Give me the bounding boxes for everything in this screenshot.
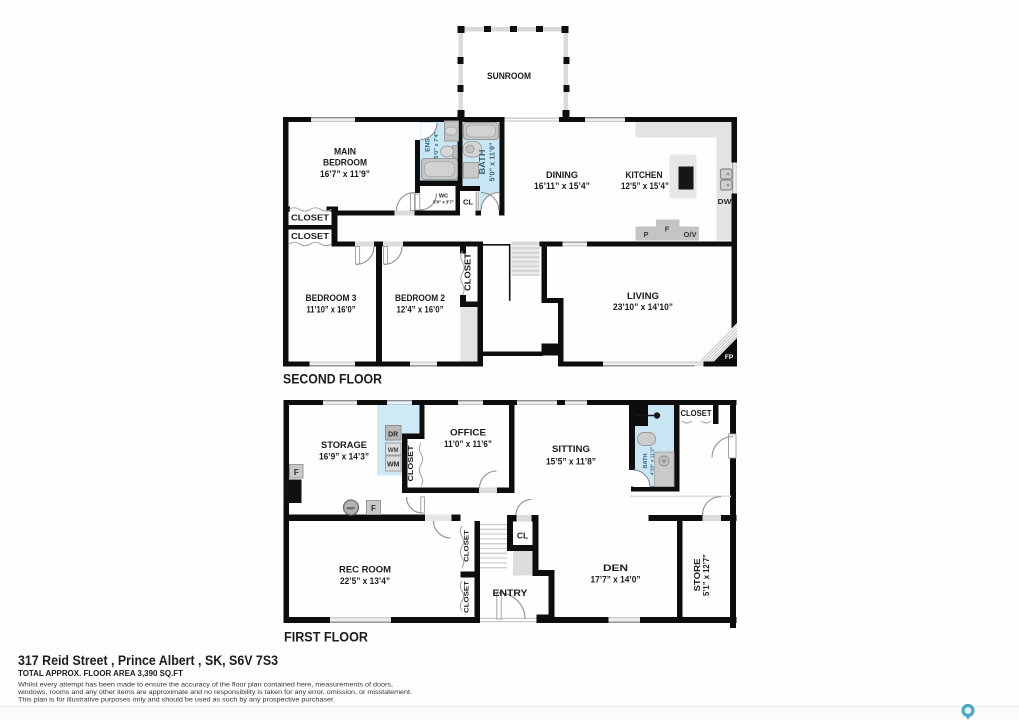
svg-text:5’0” x 3’7”: 5’0” x 3’7” — [433, 200, 454, 205]
svg-text:CLOSET: CLOSET — [464, 581, 471, 613]
svg-text:CL: CL — [463, 198, 473, 207]
svg-text:STORAGE: STORAGE — [321, 440, 367, 451]
svg-text:11’0” x 11’6”: 11’0” x 11’6” — [444, 439, 492, 450]
svg-text:16’7” x 11’9”: 16’7” x 11’9” — [320, 169, 370, 180]
svg-text:17’7” x 14’0”: 17’7” x 14’0” — [591, 575, 641, 586]
svg-text:CLOSET: CLOSET — [464, 253, 473, 291]
svg-text:OFFICE: OFFICE — [450, 428, 486, 439]
svg-text:23’10” x 14’10”: 23’10” x 14’10” — [613, 302, 673, 313]
svg-text:BATH: BATH — [643, 454, 649, 469]
svg-text:BEDROOM 2: BEDROOM 2 — [395, 293, 445, 304]
svg-text:This plan is for illustrative: This plan is for illustrative purposes o… — [18, 697, 335, 704]
svg-text:WM: WM — [387, 462, 400, 469]
svg-text:MAIN: MAIN — [334, 146, 356, 157]
svg-text:5’0” x 11’9”: 5’0” x 11’9” — [488, 142, 497, 181]
svg-text:STORE: STORE — [692, 558, 702, 591]
svg-text:ENTRY: ENTRY — [493, 588, 529, 599]
svg-text:12’4” x 16’0”: 12’4” x 16’0” — [397, 305, 444, 316]
svg-text:HWT: HWT — [347, 507, 356, 511]
svg-text:SECOND FLOOR: SECOND FLOOR — [283, 372, 382, 387]
svg-text:CLOSET: CLOSET — [464, 530, 471, 562]
svg-text:16’11” x 15’4”: 16’11” x 15’4” — [534, 181, 590, 192]
svg-text:CLOSET: CLOSET — [291, 213, 330, 223]
svg-text:P: P — [643, 230, 648, 239]
svg-text:TOTAL APPROX. FLOOR AREA 3,390: TOTAL APPROX. FLOOR AREA 3,390 SQ.FT — [18, 669, 183, 678]
svg-text:CLOSET: CLOSET — [291, 231, 330, 241]
svg-text:DR: DR — [388, 432, 398, 439]
svg-text:REC ROOM: REC ROOM — [339, 565, 391, 576]
svg-text:DW: DW — [718, 197, 733, 206]
svg-text:FP: FP — [725, 354, 734, 361]
svg-text:ENS: ENS — [425, 138, 432, 152]
svg-text:5’0” x 7’4”: 5’0” x 7’4” — [434, 131, 440, 158]
svg-text:O/V: O/V — [684, 230, 697, 239]
svg-text:5’1” x 12’7”: 5’1” x 12’7” — [702, 554, 711, 596]
svg-text:windows, rooms and any other i: windows, rooms and any other items are a… — [17, 689, 412, 696]
svg-text:DINING: DINING — [546, 170, 578, 181]
svg-text:317 Reid Street , Prince Alber: 317 Reid Street , Prince Albert , SK, S6… — [18, 653, 278, 668]
svg-text:LIVING: LIVING — [627, 291, 659, 302]
svg-text:11’10” x 16’0”: 11’10” x 16’0” — [307, 305, 356, 316]
svg-text:CLOSET: CLOSET — [681, 408, 713, 418]
svg-text:F: F — [294, 468, 299, 477]
svg-text:BATH: BATH — [477, 150, 487, 175]
svg-text:16’9” x 14’3”: 16’9” x 14’3” — [319, 452, 369, 463]
svg-text:Whilst every attempt has been: Whilst every attempt has been made to en… — [18, 682, 393, 689]
svg-text:CLOSET: CLOSET — [406, 445, 415, 481]
svg-text:SITTING: SITTING — [552, 444, 590, 455]
svg-text:22’5” x 13’4”: 22’5” x 13’4” — [340, 576, 390, 587]
svg-text:BEDROOM 3: BEDROOM 3 — [306, 293, 357, 304]
svg-text:12’5” x 15’4”: 12’5” x 15’4” — [621, 181, 669, 192]
svg-text:F: F — [665, 225, 670, 234]
svg-text:15’5” x 11’8”: 15’5” x 11’8” — [546, 457, 596, 468]
svg-text:BEDROOM: BEDROOM — [323, 157, 367, 168]
svg-text:WM: WM — [388, 448, 399, 454]
svg-text:4’10” x 11’2”: 4’10” x 11’2” — [650, 446, 656, 475]
svg-text:DEN: DEN — [603, 563, 628, 574]
svg-text:CL: CL — [517, 531, 528, 541]
svg-text:KITCHEN: KITCHEN — [626, 170, 663, 181]
svg-text:F: F — [371, 504, 376, 513]
svg-text:FIRST FLOOR: FIRST FLOOR — [284, 630, 368, 645]
svg-text:SUNROOM: SUNROOM — [487, 71, 531, 82]
